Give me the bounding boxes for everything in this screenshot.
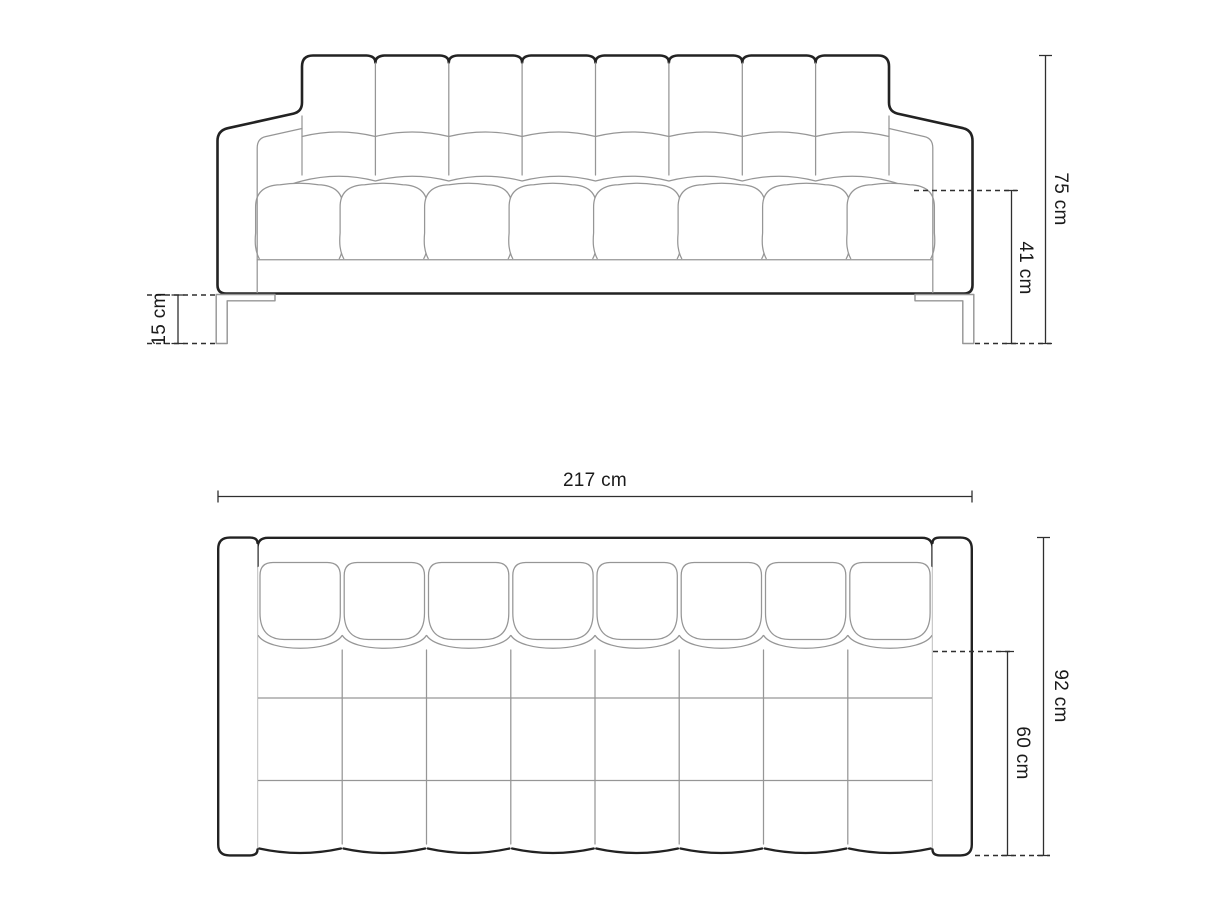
plan-seat-column-seams xyxy=(342,650,848,844)
seat-cushion xyxy=(509,183,597,258)
seat-cushion xyxy=(678,183,766,258)
front-edge-bump xyxy=(596,849,678,854)
seat-cushion xyxy=(255,183,343,258)
front-right-leg xyxy=(915,295,974,344)
dimension-line-overall-width xyxy=(218,491,972,503)
dimension-label-overall-width: 217 cm xyxy=(563,470,627,491)
seat-cushion xyxy=(762,183,850,258)
front-left-leg xyxy=(216,295,275,344)
diagram-svg: 75 cm 41 cm 15 cm xyxy=(0,0,1214,910)
back-cushion xyxy=(429,563,509,640)
back-cushion xyxy=(344,563,424,640)
plan-right-arm xyxy=(933,538,972,856)
dimension-label-seat-depth: 60 cm xyxy=(1012,726,1033,779)
front-edge-bump xyxy=(428,849,510,854)
back-cushion xyxy=(681,563,761,640)
dimension-line-leg-height xyxy=(172,295,185,344)
dimension-label-leg-height: 15 cm xyxy=(149,292,170,345)
back-cushion xyxy=(766,563,846,640)
back-cushion xyxy=(850,563,930,640)
front-edge-bump xyxy=(765,849,847,854)
back-cushion xyxy=(513,563,593,640)
back-cushion xyxy=(597,563,677,640)
front-edge-bump xyxy=(680,849,762,854)
front-edge-bump xyxy=(849,849,931,854)
top-view: 217 cm 92 cm 60 cm xyxy=(218,470,1071,856)
seat-cushion xyxy=(340,183,428,258)
back-cushion xyxy=(260,563,340,640)
front-edge-bump xyxy=(343,849,425,854)
plan-left-arm xyxy=(218,538,257,856)
seat-cushion xyxy=(593,183,681,258)
plan-back-rail xyxy=(258,538,933,566)
plan-seat-front-edge xyxy=(259,849,931,854)
front-view: 75 cm 41 cm 15 cm xyxy=(147,56,1071,346)
front-edge-bump xyxy=(259,849,341,854)
dimension-label-overall-height: 75 cm xyxy=(1050,172,1071,225)
dimension-line-overall-depth xyxy=(1037,538,1050,856)
sofa-dimension-diagram: 75 cm 41 cm 15 cm xyxy=(0,0,1214,910)
dimension-label-seat-height: 41 cm xyxy=(1015,241,1036,294)
seat-cushion xyxy=(847,183,935,258)
seat-cushion xyxy=(424,183,512,258)
plan-back-cushions xyxy=(260,563,930,640)
dimension-label-overall-depth: 92 cm xyxy=(1050,669,1071,722)
front-edge-bump xyxy=(512,849,594,854)
